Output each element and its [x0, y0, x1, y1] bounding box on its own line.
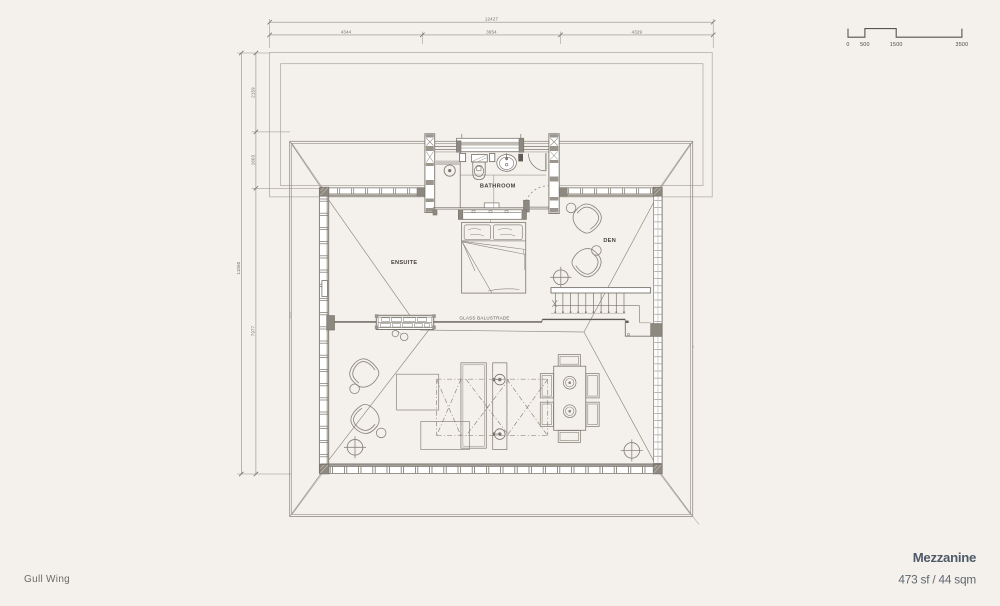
svg-text:11060: 11060 — [236, 261, 241, 274]
svg-text:Gull Wing: Gull Wing — [24, 574, 70, 585]
svg-text:1603: 1603 — [250, 154, 255, 165]
svg-text:Mezzanine: Mezzanine — [913, 550, 976, 565]
svg-text:BATHROOM: BATHROOM — [480, 183, 516, 189]
svg-text:[: [ — [290, 313, 292, 319]
svg-text:12427: 12427 — [485, 17, 499, 22]
svg-text:2159: 2159 — [250, 87, 255, 98]
svg-text:˃: ˃ — [690, 345, 695, 348]
svg-text:0: 0 — [846, 42, 849, 48]
svg-text:500: 500 — [860, 42, 870, 48]
svg-text:ENSUITE: ENSUITE — [391, 260, 417, 266]
svg-text:3500: 3500 — [956, 42, 969, 48]
svg-text:473 sf / 44 sqm: 473 sf / 44 sqm — [898, 573, 976, 587]
svg-text:3954: 3954 — [486, 29, 497, 34]
svg-text:GLASS BALUSTRADE: GLASS BALUSTRADE — [459, 316, 509, 321]
svg-text:4329: 4329 — [632, 29, 643, 34]
svg-text:4344: 4344 — [341, 29, 352, 34]
svg-text:1500: 1500 — [890, 42, 903, 48]
svg-text:7977: 7977 — [250, 325, 255, 336]
svg-text:DEN: DEN — [603, 238, 616, 244]
